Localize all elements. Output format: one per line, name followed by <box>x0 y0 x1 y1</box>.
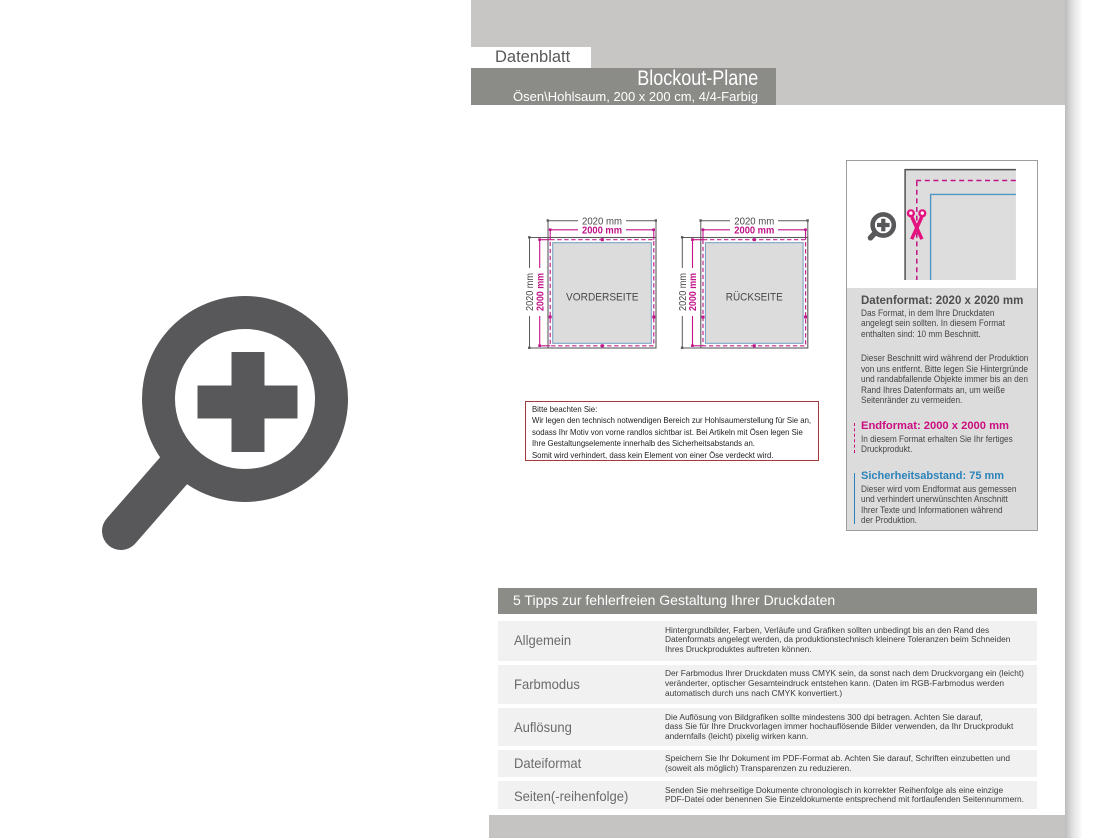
svg-text:2000 mm: 2000 mm <box>688 273 699 311</box>
svg-text:2000 mm: 2000 mm <box>734 226 774 237</box>
svg-text:2000 mm: 2000 mm <box>582 226 622 237</box>
svg-text:VORDERSEITE: VORDERSEITE <box>566 292 639 304</box>
svg-text:2000 mm: 2000 mm <box>535 273 546 311</box>
svg-text:RÜCKSEITE: RÜCKSEITE <box>726 292 783 304</box>
